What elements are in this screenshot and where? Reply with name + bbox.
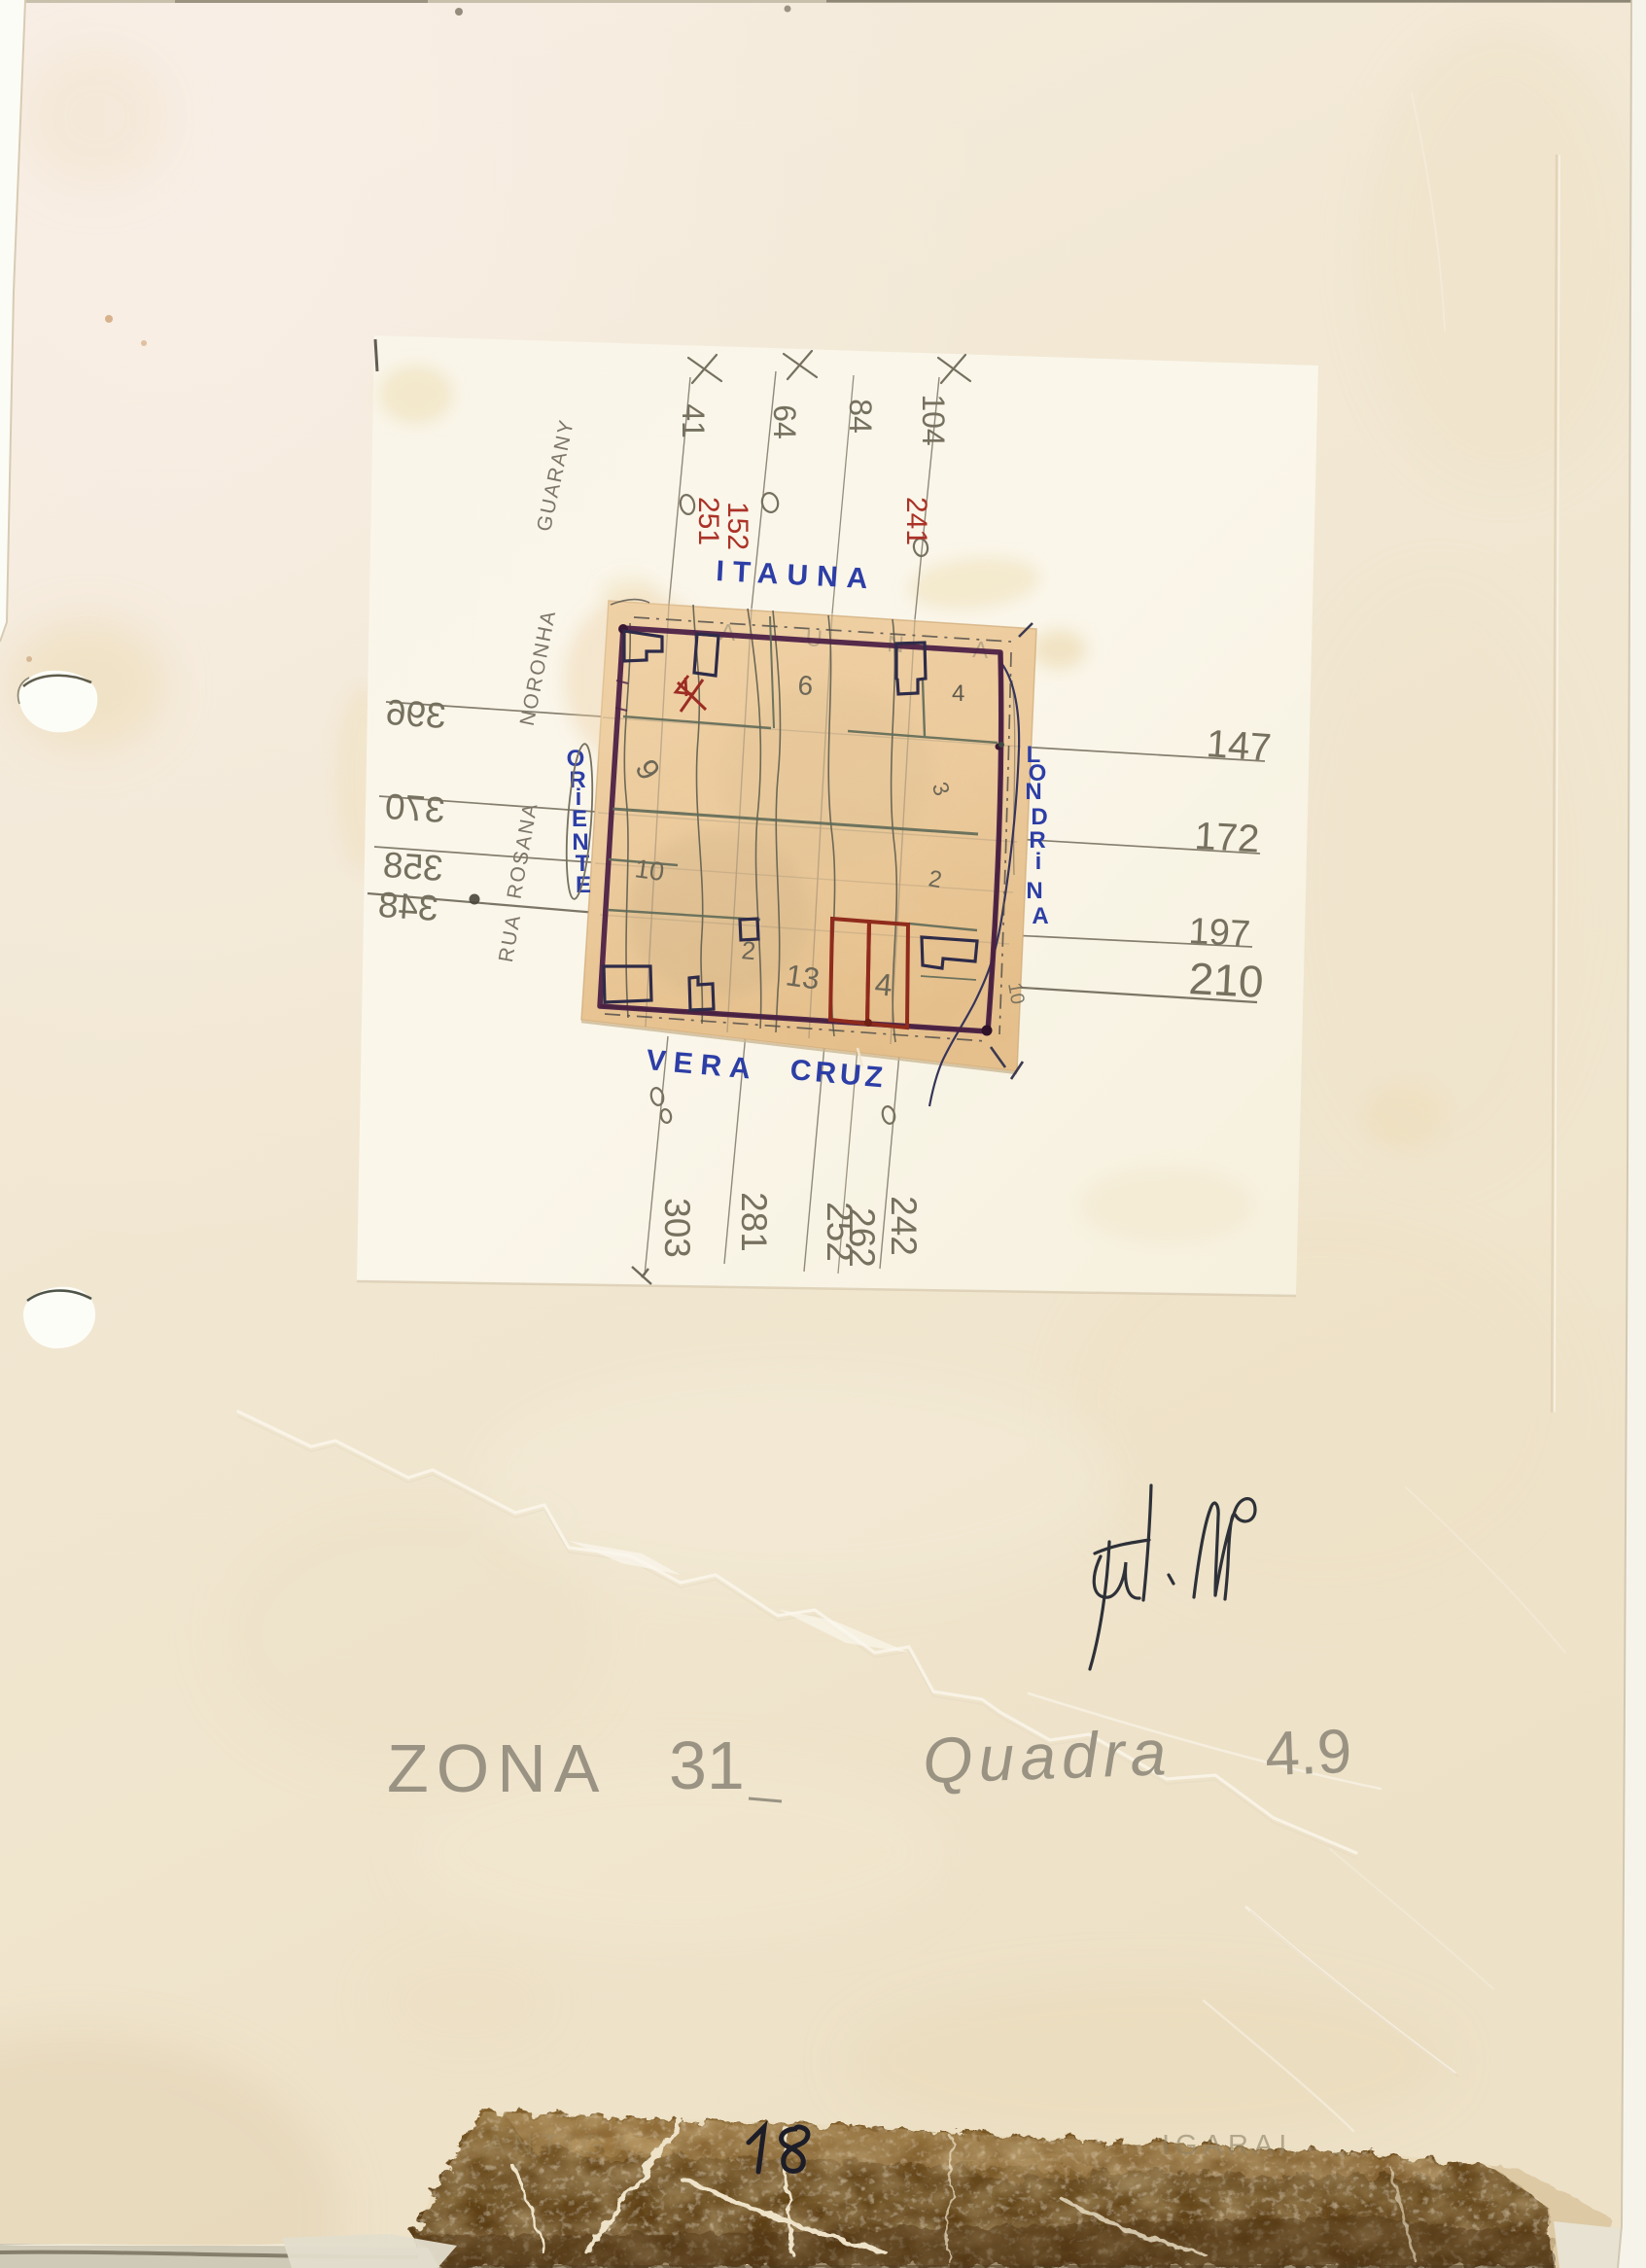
svg-text:262: 262: [842, 1207, 882, 1268]
svg-text:358: 358: [382, 845, 444, 889]
svg-text:10: 10: [633, 854, 666, 887]
svg-text:10: 10: [1003, 981, 1029, 1006]
svg-text:147: 147: [1205, 722, 1273, 770]
svg-text:370: 370: [384, 786, 446, 830]
svg-text:2: 2: [740, 935, 756, 965]
svg-text:64: 64: [767, 404, 802, 439]
svg-text:i: i: [1035, 849, 1042, 875]
svg-text:13: 13: [784, 958, 822, 995]
svg-text:4: 4: [873, 966, 893, 1002]
svg-text:84: 84: [843, 399, 878, 434]
svg-text:242: 242: [884, 1196, 924, 1256]
svg-text:E: E: [572, 806, 587, 832]
svg-text:ANTIGA: ANTIGA: [486, 2130, 638, 2161]
svg-text:41: 41: [676, 403, 711, 438]
svg-text:4: 4: [952, 680, 964, 707]
svg-text:104: 104: [916, 394, 951, 445]
svg-text:N: N: [1025, 779, 1041, 805]
svg-text:251: 251: [692, 497, 724, 545]
svg-text:197: 197: [1188, 911, 1252, 955]
svg-text:IGARAI: IGARAI: [1162, 2130, 1292, 2161]
svg-text:210: 210: [1187, 953, 1264, 1007]
svg-text:D: D: [1031, 804, 1047, 830]
svg-text:348: 348: [377, 885, 439, 928]
svg-text:4.9: 4.9: [1264, 1716, 1352, 1789]
svg-text:172: 172: [1194, 815, 1261, 860]
svg-text:Quadra: Quadra: [922, 1716, 1173, 1797]
svg-text:152: 152: [721, 502, 753, 550]
svg-text:303: 303: [657, 1198, 697, 1258]
svg-text:A: A: [1032, 903, 1048, 929]
svg-text:281: 281: [734, 1192, 774, 1252]
svg-text:396: 396: [385, 692, 447, 736]
svg-text:ZONA: ZONA: [387, 1730, 607, 1806]
svg-text:31: 31: [669, 1727, 745, 1803]
svg-text:N: N: [1026, 878, 1042, 904]
svg-text:241: 241: [900, 497, 932, 545]
svg-text:6: 6: [797, 670, 815, 701]
